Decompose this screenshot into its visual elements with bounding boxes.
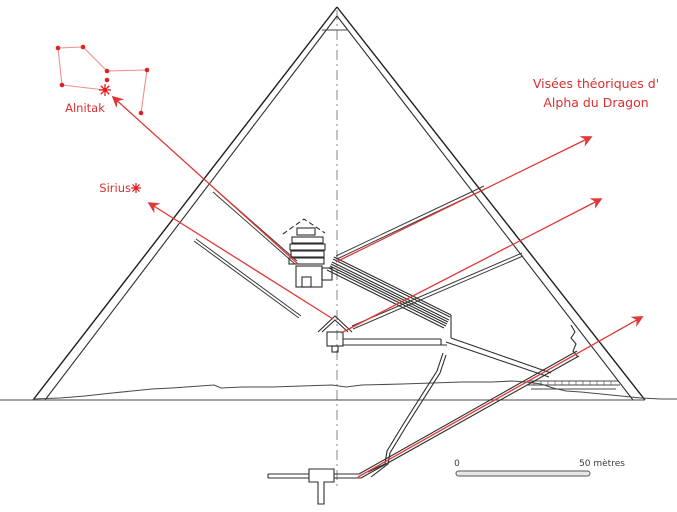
air-shafts: [194, 186, 523, 329]
constellation-edge: [141, 70, 147, 113]
visees-theoriques-label-line2: Alpha du Dragon: [543, 95, 648, 110]
subterranean-chamber: [268, 469, 334, 504]
constellation-star: [56, 46, 61, 51]
well-shaft: [368, 353, 446, 477]
queens-chamber-north-shaft-to-alpha-draconis: [341, 199, 601, 333]
descending-passage-to-alpha-draconis: [358, 317, 642, 477]
scale-start-label: 0: [454, 459, 460, 469]
scale-end-label: 50 mètres: [579, 458, 625, 469]
constellation-edge: [58, 47, 83, 48]
masonry-joint-ticks: [534, 381, 611, 385]
sirius-label: Sirius: [99, 181, 131, 195]
ground-line: [0, 381, 677, 400]
queens-chamber: [327, 332, 343, 346]
ascending-passage: [446, 338, 551, 377]
star-symbols: [131, 183, 141, 193]
visees-theoriques-label-line1: Visées théoriques d': [533, 76, 659, 91]
alnitak-label: Alnitak: [65, 101, 105, 115]
antechamber: [322, 268, 332, 280]
constellation-star: [145, 68, 150, 73]
constellation-star: [60, 83, 65, 88]
constellation-edge: [83, 47, 107, 71]
base-masonry-platform: [527, 381, 620, 389]
sirius-star-core: [134, 186, 138, 190]
constellation-star: [81, 45, 86, 50]
pyramid-outline: [33, 7, 645, 400]
kings-chamber-north-shaft-to-alpha-draconis: [336, 137, 591, 262]
scale-bar-rule: [456, 471, 590, 476]
alnitak-star: [99, 84, 111, 96]
scale-bar: 0 50 mètres: [454, 458, 625, 476]
constellation-star: [105, 69, 110, 74]
kings-chamber-complex: [283, 219, 332, 287]
alnitak-star-core: [103, 88, 107, 92]
pyramid-cross-section-diagram: 0 50 mètres Alnitak Sirius Visées théori…: [0, 0, 677, 512]
constellation-edge: [58, 48, 62, 85]
constellation-edge: [107, 70, 147, 71]
constellation-star: [139, 111, 144, 116]
sirius-star: [131, 183, 141, 193]
constellation-star: [105, 78, 110, 83]
diagram-canvas: 0 50 mètres Alnitak Sirius Visées théori…: [0, 0, 677, 512]
relieving-gable-roof: [283, 219, 325, 234]
kings-north-shaft: [336, 186, 484, 256]
constellation-edge: [62, 85, 105, 90]
